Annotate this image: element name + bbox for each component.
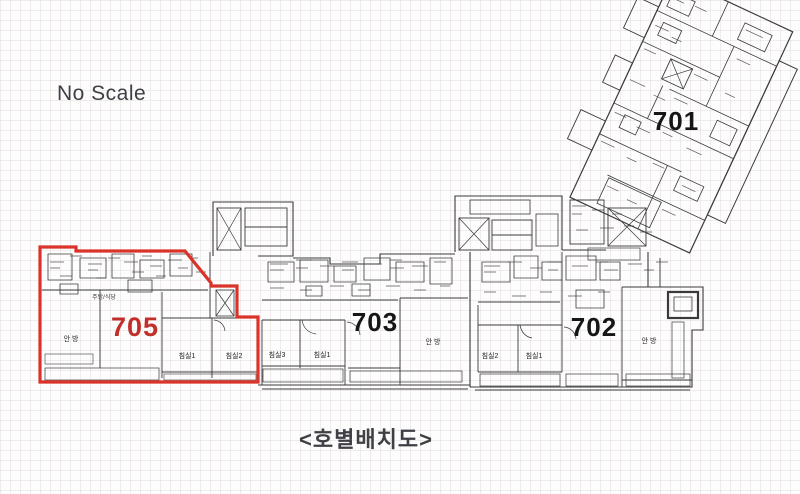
room-label-705-kitchen: 주방/식당 [92,293,116,301]
bold-room-box-702 [668,292,698,318]
caption: <호별배치도> [299,422,433,454]
room-label-705-bed1: 침실1 [179,351,196,360]
room-label-703-master: 안 방 [426,337,441,346]
room-label-702-bed2: 침실2 [482,351,499,360]
unit-number-703: 703 [352,307,398,337]
unit-number-702: 702 [571,312,617,342]
unit-number-701: 701 [653,106,699,136]
room-label-702-master: 안 방 [642,336,657,345]
stair-core-a [213,202,293,256]
fixture-clutter-705 [50,256,206,278]
room-label-705-master: 안 방 [64,334,79,343]
balcony-705-right [164,374,256,380]
balcony-705-left [45,368,159,380]
balcony-703-right [350,371,462,382]
balcony-702-left [480,374,560,386]
balcony-702-mid [566,374,618,386]
floor-plan-drawing: 침실3 침실1 안 방 침실2 침실1 안 방 [0,0,800,494]
balcony-703-left [263,369,343,382]
room-label-705-bed2: 침실2 [226,351,243,360]
room-label-702-bed1: 침실1 [526,351,543,360]
stair-core-b [455,196,562,252]
page: No Scale [0,0,800,494]
unit-number-705: 705 [111,312,159,342]
room-label-703-bed1: 침실1 [314,350,331,359]
room-label-703-bed3: 침실3 [269,350,286,359]
